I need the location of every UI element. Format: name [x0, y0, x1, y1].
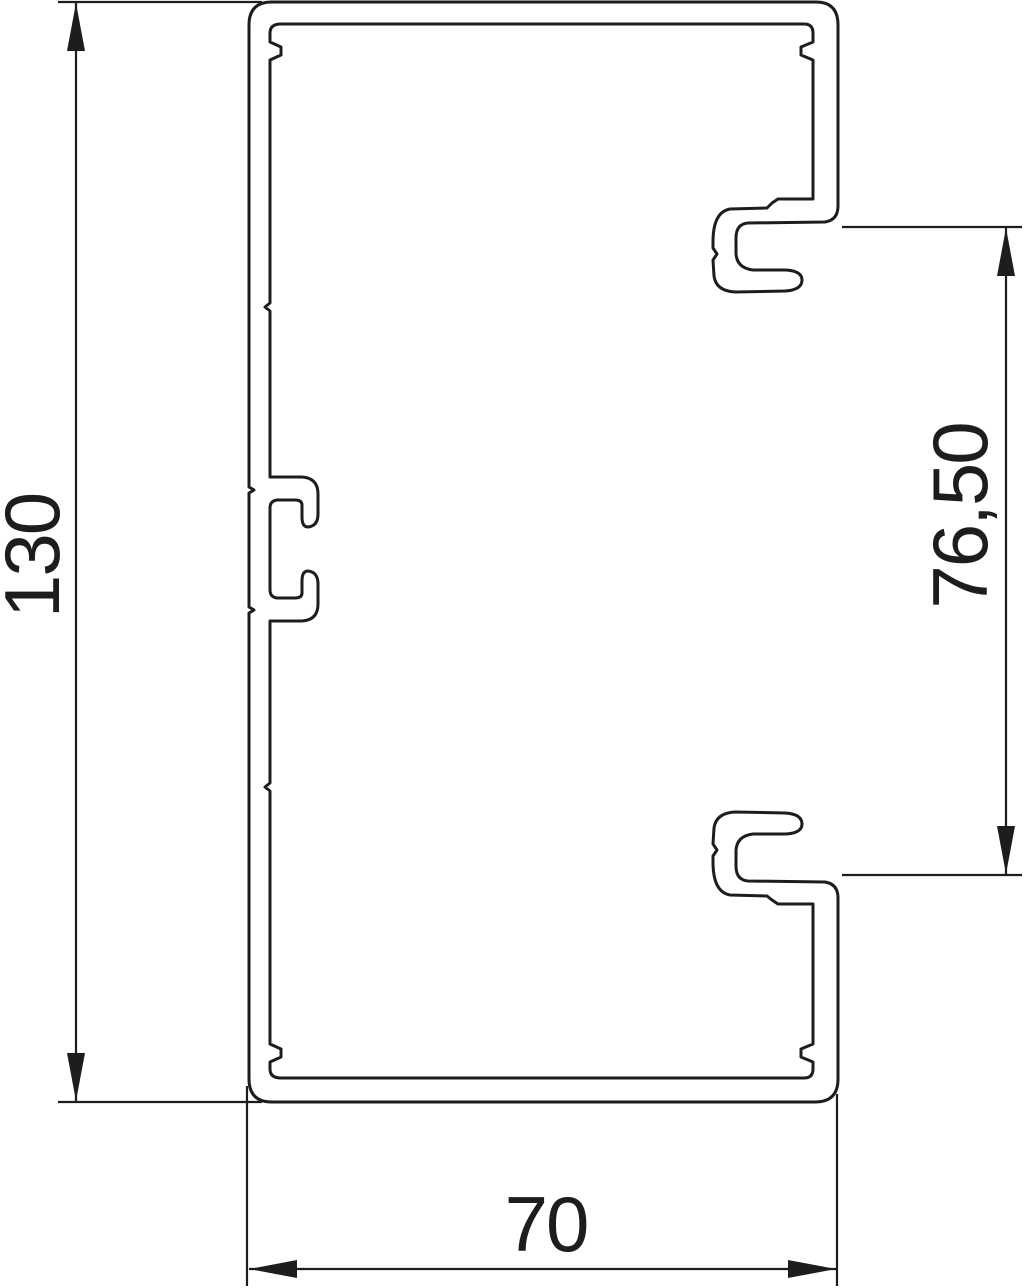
profile-drawing-svg: 130 76,50 70: [0, 0, 1024, 1288]
dimension-opening: 76,50: [842, 227, 1022, 875]
dimension-height: 130: [0, 2, 262, 1102]
arrowhead-width-right: [788, 1260, 836, 1278]
arrowhead-width-left: [249, 1260, 297, 1278]
technical-drawing-canvas: 130 76,50 70: [0, 0, 1024, 1288]
dimension-text-width: 70: [505, 1180, 588, 1268]
arrowhead-height-top: [67, 3, 85, 51]
dimension-text-opening: 76,50: [916, 423, 1004, 608]
dimension-text-height: 130: [0, 494, 76, 618]
arrowhead-opening-top: [997, 228, 1015, 276]
arrowhead-height-bottom: [67, 1053, 85, 1101]
arrowhead-opening-bottom: [997, 826, 1015, 874]
dimension-width: 70: [247, 1086, 837, 1286]
profile-outline: [249, 2, 838, 1102]
